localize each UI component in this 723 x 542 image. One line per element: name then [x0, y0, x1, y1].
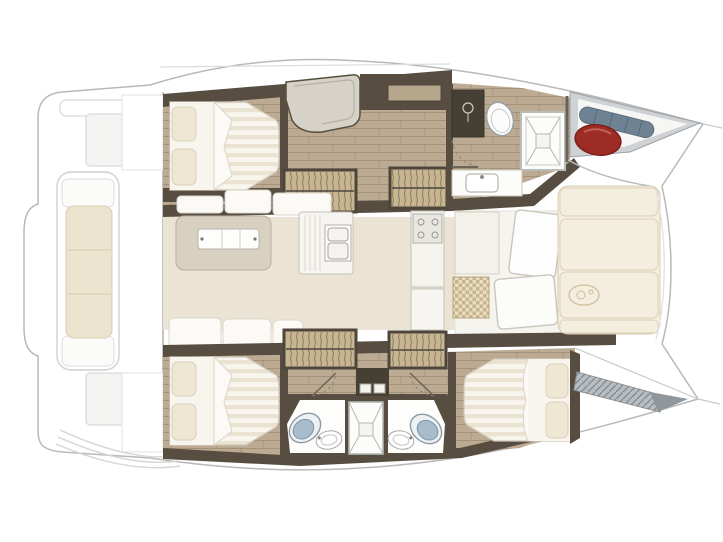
bowsprit-line-bottom — [698, 399, 720, 404]
bench-end-bottom — [62, 336, 114, 366]
floor-plan-canvas — [0, 0, 723, 542]
front-window-panel — [455, 212, 499, 274]
checkered-mat — [453, 277, 489, 318]
table-knob — [253, 237, 256, 240]
vanity-basin — [360, 384, 371, 393]
sunbed-cushion — [560, 272, 658, 318]
catamaran-floor-plan: Catamaran deck and accommodation floor p… — [0, 0, 723, 542]
port-fwd-cabinet-front — [388, 85, 441, 101]
forward-cockpit — [558, 186, 664, 340]
vanity-basin — [374, 384, 385, 393]
bench-end-top — [62, 179, 114, 207]
bowsprit-line-top — [703, 124, 722, 128]
shower-drain — [359, 423, 373, 436]
pillow — [172, 107, 196, 141]
pillow — [546, 364, 568, 398]
folding-door — [508, 209, 562, 278]
faucet — [480, 175, 484, 179]
sunbed-cushion — [560, 188, 658, 216]
bench-cushion — [66, 206, 112, 338]
sink-bowl — [328, 228, 348, 241]
sink-bowl — [328, 243, 348, 259]
bench-cushion — [177, 196, 223, 213]
pillow — [546, 402, 568, 438]
port-wardrobe-steps — [390, 168, 447, 208]
bench-cushion — [225, 190, 271, 213]
transom-bench — [57, 172, 119, 370]
galley-cabinet — [411, 289, 444, 330]
central-shower — [349, 402, 383, 454]
pillow — [172, 362, 196, 396]
pillow — [172, 404, 196, 440]
stbd-companionway-steps — [284, 330, 356, 368]
cabin-divider — [448, 352, 456, 452]
washbasin-counter — [452, 170, 522, 196]
sunbed-cushion — [560, 320, 658, 333]
shower-drain — [536, 134, 550, 148]
pillow — [172, 149, 196, 185]
aft-deck-panel-top — [122, 95, 163, 170]
bench-cushion — [223, 319, 271, 347]
aft-deck-panel-bottom — [122, 373, 163, 452]
island-table — [176, 216, 271, 270]
table-knob — [200, 237, 203, 240]
folding-door — [494, 274, 558, 329]
stove — [413, 214, 442, 243]
table-top — [198, 229, 259, 249]
shower-cabin — [521, 112, 565, 170]
bow-bulkhead — [570, 350, 580, 444]
stbd-wardrobe-steps — [389, 332, 446, 368]
bench-cushion — [169, 318, 221, 347]
sunbed-cushion — [560, 219, 658, 270]
